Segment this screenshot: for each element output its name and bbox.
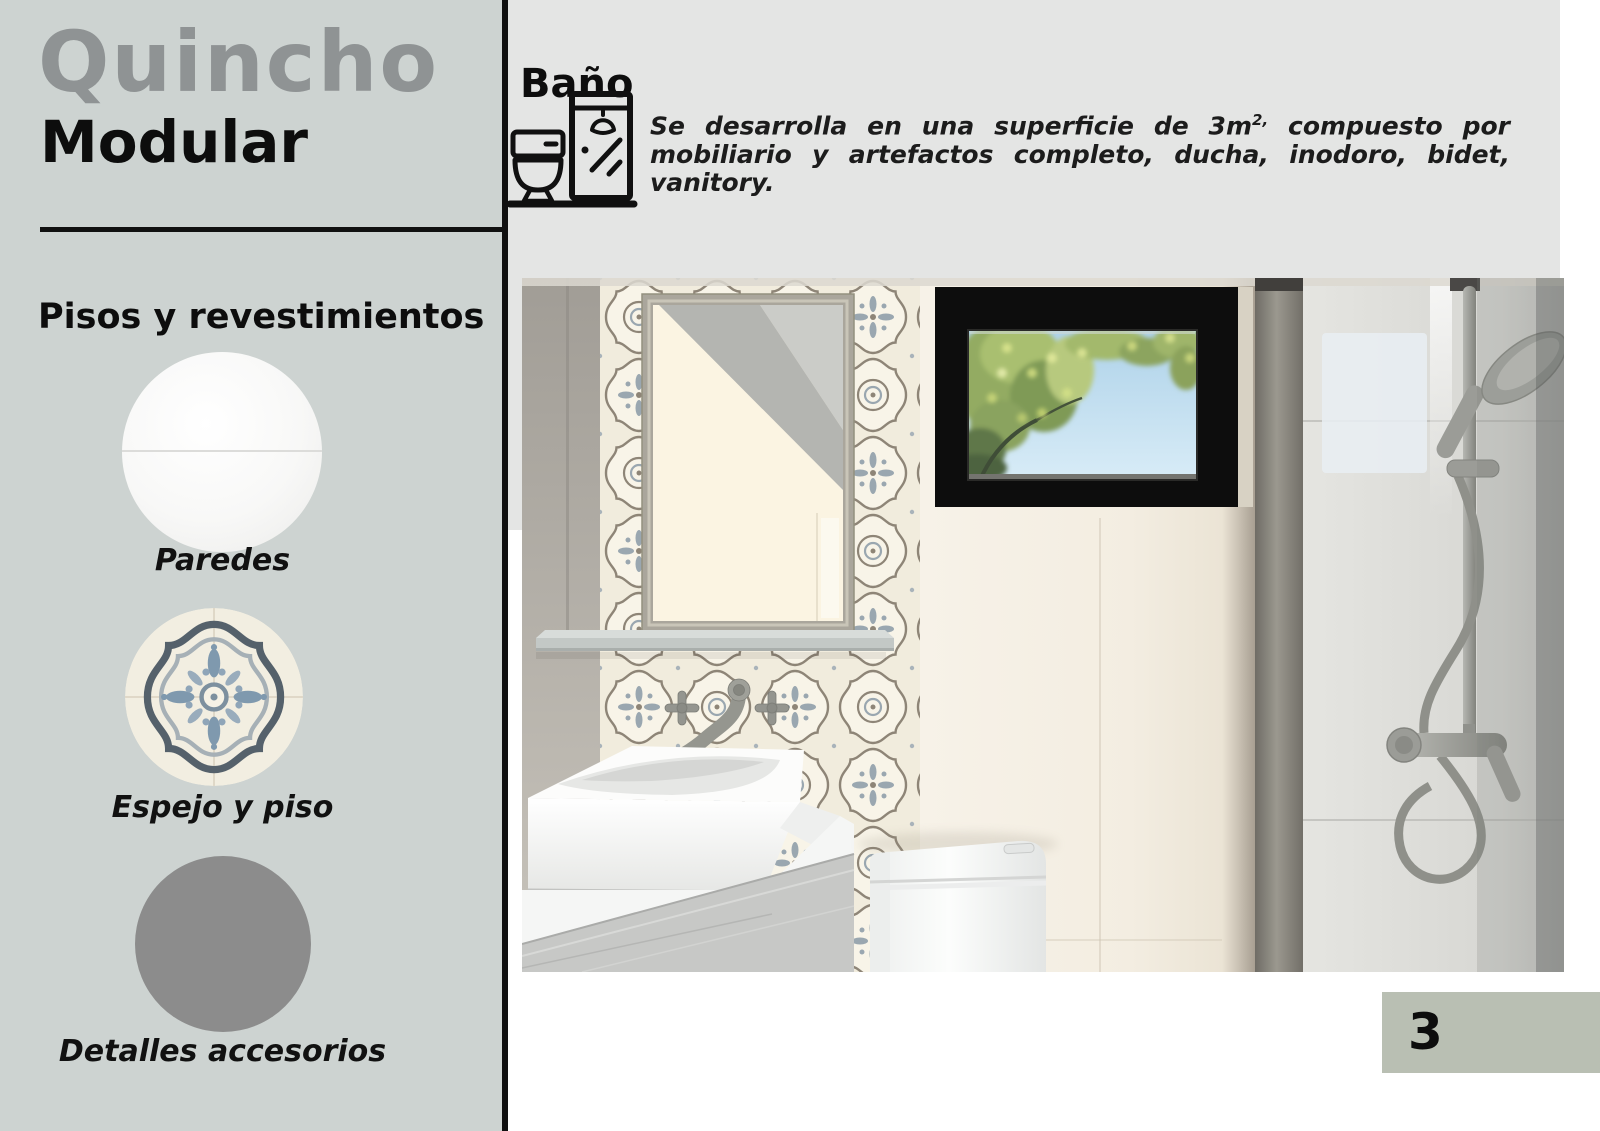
- swatch-label-paredes: Paredes: [0, 543, 445, 578]
- brand-title-line1: Quincho: [38, 18, 439, 106]
- glass-frame-strip: [1255, 278, 1303, 972]
- toilet: [858, 832, 1058, 972]
- window: [935, 287, 1253, 507]
- mirror: [642, 294, 854, 632]
- glass-reflection: [1322, 333, 1427, 473]
- toilet-shower-icon: [506, 86, 638, 210]
- sidebar: Quincho Modular Pisos y revestimientos P…: [0, 0, 502, 1131]
- gray-accessory-swatch: [135, 856, 311, 1032]
- patterned-tile-swatch: [125, 608, 303, 786]
- brand-title-line2: Modular: [40, 112, 308, 173]
- tile-motif-icon: [125, 608, 303, 786]
- section-heading: Pisos y revestimientos: [38, 297, 484, 337]
- bathroom-render: [522, 278, 1564, 972]
- wall-texture-swatch: [122, 352, 322, 552]
- swatch-label-espejo: Espejo y piso: [0, 790, 445, 825]
- shelf: [536, 630, 894, 659]
- swatch-label-detalles: Detalles accesorios: [0, 1034, 445, 1069]
- page-number-box: 3: [1382, 992, 1600, 1073]
- description-text: Se desarrolla en una superficie de 3m2, …: [650, 112, 1510, 198]
- page: Quincho Modular Pisos y revestimientos P…: [0, 0, 1600, 1131]
- page-number: 3: [1382, 992, 1600, 1073]
- description-superscript: 2,: [1252, 111, 1268, 129]
- wall-seam-line: [122, 450, 322, 452]
- description-part1: Se desarrolla en una superficie de 3m: [650, 111, 1252, 140]
